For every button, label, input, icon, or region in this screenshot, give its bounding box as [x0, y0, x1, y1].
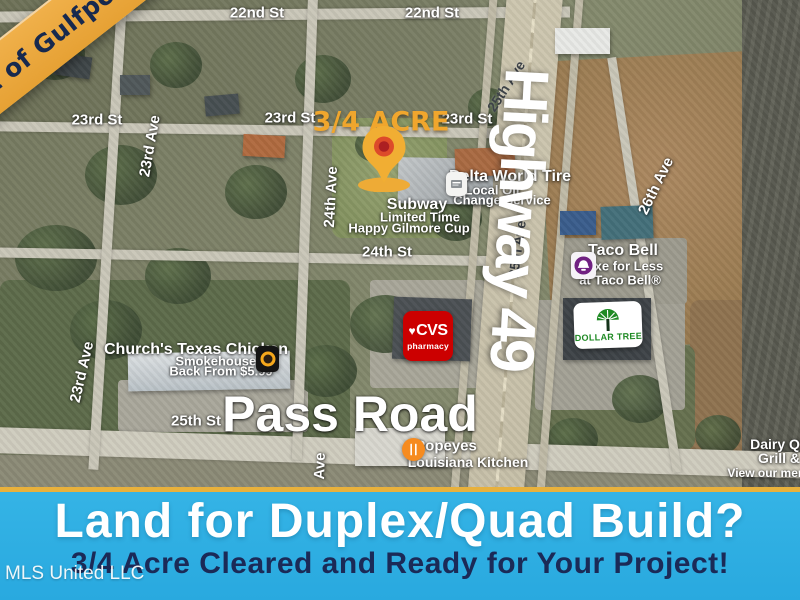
satellite-map: 22nd St22nd St22nd St23rd St23rd St23rd …	[0, 0, 800, 487]
street-label: 24th Ave	[322, 166, 340, 228]
business-label: Dairy Q	[750, 437, 800, 451]
map-terrain-patch	[295, 55, 351, 103]
street-label: 22nd St	[230, 6, 284, 21]
location-pin-icon	[354, 122, 414, 192]
taco-bell-logo-icon	[571, 252, 596, 279]
cvs-pharmacy-logo: ♥ CVS pharmacy	[403, 311, 453, 361]
business-label: Happy Gilmore Cup	[348, 222, 469, 235]
map-terrain-patch	[560, 211, 596, 235]
map-terrain-patch	[555, 28, 610, 54]
listing-graphic: 22nd St22nd St22nd St23rd St23rd St23rd …	[0, 0, 800, 600]
street-label: 23rd St	[72, 113, 123, 128]
business-label: Grill &	[758, 451, 800, 465]
street-label: Ave	[312, 452, 328, 479]
business-label: View our menu	[727, 467, 800, 479]
cvs-pharmacy-text: pharmacy	[407, 341, 449, 351]
dollar-tree-tree-icon	[594, 308, 621, 333]
popeyes-logo-icon	[402, 438, 425, 461]
street-label: 25th St	[171, 414, 221, 429]
banner-title: Land for Duplex/Quad Build?	[0, 494, 800, 549]
gold-divider	[0, 487, 800, 492]
map-terrain-patch	[150, 42, 202, 88]
map-terrain-patch	[204, 94, 240, 117]
street-label: 23rd St	[265, 111, 316, 126]
business-label: Taco Bell	[588, 243, 658, 259]
heart-icon: ♥	[408, 324, 415, 338]
delta-world-tire-logo-icon	[446, 172, 467, 196]
dollar-tree-logo: DOLLAR TREE	[573, 301, 643, 349]
dollar-tree-wordmark: DOLLAR TREE	[575, 331, 643, 343]
map-terrain-patch	[225, 165, 287, 219]
churchs-chicken-logo-icon	[256, 346, 279, 372]
road-name-label: Pass Road	[222, 389, 478, 439]
mls-watermark: MLS United LLC	[5, 563, 144, 585]
business-label: Louisiana Kitchen	[408, 455, 529, 469]
map-terrain-patch	[120, 75, 150, 95]
street-label: 22nd St	[405, 6, 459, 21]
cvs-wordmark: CVS	[416, 322, 447, 340]
street-label: 24th St	[362, 245, 412, 260]
map-terrain-patch	[742, 0, 800, 487]
map-terrain-patch	[242, 134, 285, 158]
